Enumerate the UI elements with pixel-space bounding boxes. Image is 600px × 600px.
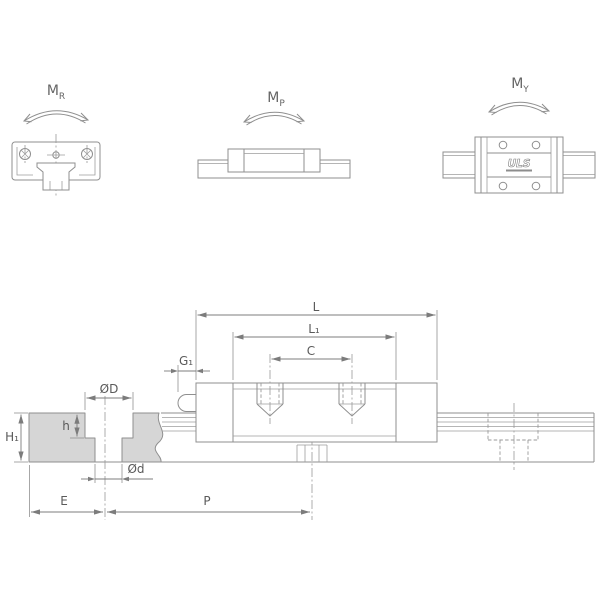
dim-label-OD: ØD	[100, 383, 119, 395]
dim-label-L: L	[313, 301, 320, 313]
rail-hole-middle	[297, 436, 327, 520]
brand-logo: ULS	[508, 158, 531, 170]
dim-label-Od: Ød	[127, 463, 144, 475]
dim-label-E: E	[60, 495, 68, 507]
technical-drawing-canvas: ULS	[0, 0, 600, 600]
dim-label-H1: H₁	[5, 431, 19, 443]
top-view-diagram: ULS	[443, 102, 595, 193]
dim-label-G1: G₁	[179, 355, 193, 367]
dim-label-L1: L₁	[308, 323, 320, 335]
drawing-linework: ULS	[0, 0, 600, 600]
rail-section-cut	[29, 413, 163, 462]
carriage-side-outline	[228, 149, 320, 172]
logo-subtext-bar	[506, 170, 532, 172]
dim-label-C: C	[307, 345, 315, 357]
profile-section-view	[14, 310, 594, 520]
grease-nipple	[178, 395, 196, 412]
carriage-body-outline	[196, 383, 437, 442]
side-view-diagram	[198, 112, 350, 178]
rail-profile-front	[37, 163, 75, 190]
moment-label-mp: MP	[267, 91, 285, 109]
moment-label-mr: MR	[47, 84, 65, 102]
moment-label-my: MY	[511, 77, 529, 95]
dim-label-P: P	[203, 495, 210, 507]
carriage-section	[178, 354, 437, 442]
dim-label-h: h	[62, 420, 70, 432]
front-view-diagram	[12, 111, 100, 196]
